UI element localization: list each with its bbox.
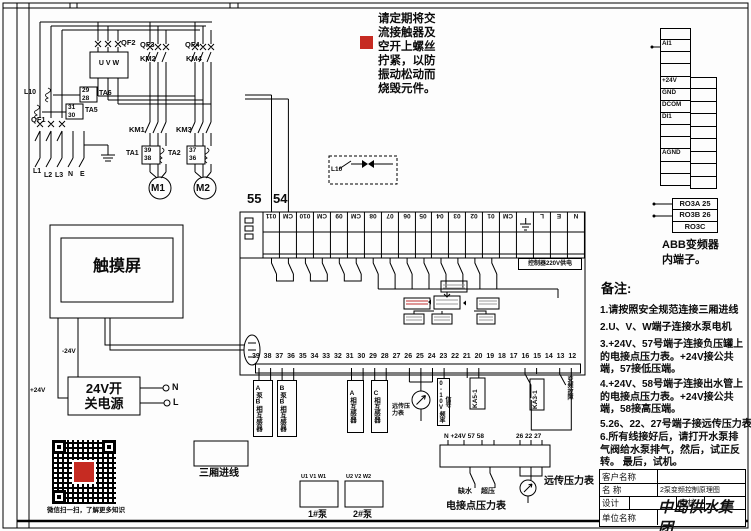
psu-n: N	[172, 382, 179, 392]
red-seal-icon	[360, 36, 373, 49]
label-ta2: TA2	[168, 150, 181, 158]
titleblock-name-label: 名 称	[600, 484, 658, 497]
pump1-terminals-label: U1 V1 W1	[301, 474, 326, 480]
label-km4: KM4	[186, 55, 202, 64]
freq-signal-label: 0-10V频率信号	[437, 378, 450, 426]
label-km1: KM1	[129, 126, 145, 135]
label-float-l10: L10	[331, 166, 342, 173]
sensor-wiring	[259, 368, 571, 430]
schematic-page: 请定期将交 流接触器及 空开上螺丝 拧紧，以防 振动松动而 烧毁元件。 QF1 …	[0, 0, 751, 531]
qr-caption: 微信扫一扫，了解更多知识	[38, 507, 134, 514]
contact-gauge-label: 电接点压力表	[446, 501, 506, 513]
pump1-label: 1#泵	[308, 509, 327, 519]
abb-right-terminals[interactable]	[690, 77, 717, 189]
label-54: 54	[273, 192, 287, 207]
low-water-label: 缺水	[458, 488, 472, 496]
relay-ka3-label: KA3-1	[532, 381, 539, 409]
label-qf2: QF2	[121, 39, 136, 48]
label-55: 55	[247, 192, 261, 207]
label-km2: KM2	[140, 55, 156, 64]
plc-top-terminal-row[interactable]: 011CM010CM09CM0807060504030201CMLEN	[263, 212, 585, 258]
remote-gauge-small-label: 远传压 力表	[392, 404, 410, 418]
label-l1: L1	[33, 168, 41, 176]
titleblock-company-label: 单位名称	[600, 510, 658, 525]
qr-code[interactable]	[52, 440, 116, 504]
notes-title: 备注:	[601, 282, 631, 297]
label-l2: L2	[44, 172, 52, 180]
remote-gauge-label: 远传压力表	[544, 476, 594, 488]
qr-finder-icon	[52, 440, 66, 454]
note-6: 6.所有线接好后，请打开水泵排气阀给水泵排气，然后，试正反转。 最后，试机。	[600, 432, 748, 470]
note-4: 4.+24V、58号端子连接出水管上的电接点压力表。+24V接公共端，58接高压…	[600, 379, 748, 417]
plc-bottom-terminal-row[interactable]: 3938373635343332313029282726252423222120…	[250, 353, 578, 360]
qr-logo	[72, 460, 96, 484]
mini-flow-diagram	[404, 281, 499, 324]
label-ta5-terms: 3130	[68, 104, 75, 119]
label-km3: KM3	[176, 126, 192, 135]
maintenance-note: 请定期将交 流接触器及 空开上螺丝 拧紧，以防 振动松动而 烧毁元件。	[378, 12, 444, 96]
titleblock-company-name: 中岛供水集团	[658, 508, 745, 526]
relay-ka5-label: KA5-1	[472, 380, 479, 408]
abb-caption: ABB变频器 内端子。	[662, 238, 719, 268]
over-pressure-label: 超压	[481, 488, 495, 496]
titleblock-customer-value	[658, 470, 745, 484]
touchscreen-label[interactable]: 触摸屏	[61, 258, 173, 276]
ct-phase-a-label: A相互感器	[347, 380, 364, 433]
qr-finder-icon	[52, 490, 66, 504]
qr-finder-icon	[102, 440, 116, 454]
psu-l: L	[173, 397, 179, 407]
plc-input-contacts	[272, 258, 559, 298]
label-plus24v: +24V	[30, 387, 45, 394]
label-minus24v: -24V	[62, 348, 76, 355]
label-qf1: QF1	[31, 116, 46, 125]
note-5: 5.26、22、27号端子接远传压力表	[600, 419, 751, 431]
label-e-in: E	[80, 171, 85, 179]
label-ta2-terms: 3736	[189, 147, 196, 163]
three-phase-inline-label: 三厢进线	[199, 468, 239, 480]
label-l10: L10	[24, 89, 36, 97]
title-block: 客户名称 名 称 2泵变频控制原理图 设计 审核 单位名称 中岛供水集团	[599, 469, 746, 527]
label-qf4: QF4	[185, 41, 200, 50]
psu-label: 24V开 关电源	[72, 381, 136, 411]
strip-labels-left: N +24V 57 58	[444, 433, 484, 440]
label-ta5: TA5	[85, 107, 98, 115]
label-qf3: QF3	[140, 41, 155, 50]
abb-left-terminals[interactable]: AI1+24VGNDDCOMDI1AGND	[660, 28, 691, 186]
note-2: 2.U、V、W端子连接水泵电机	[600, 322, 750, 335]
titleblock-design-label: 设计	[600, 497, 630, 510]
pump2-label: 2#泵	[353, 509, 372, 519]
label-ta6-terms: 2928	[82, 87, 89, 102]
ct-pump-b-label: B泵B相互感器	[277, 380, 297, 437]
note-3: 3.+24V、57号端子连接负压罐上的电接点压力表。+24V接公共端，57接低压…	[600, 339, 748, 377]
label-m2: M2	[196, 183, 210, 195]
label-l3: L3	[55, 172, 63, 180]
label-n-in: N	[68, 171, 73, 179]
label-ta6: TA6	[99, 90, 112, 98]
vfd-fault-label: 变频故障	[566, 376, 572, 416]
label-ta1-terms: 3938	[144, 147, 151, 163]
plc-supply-label: 控制器220V供电	[518, 258, 582, 270]
ct-phase-c-label: C相互感器	[371, 380, 388, 433]
terminal-strip-photos	[194, 440, 550, 507]
note-1: 1.请按照安全规范连接三厢进线	[600, 305, 750, 318]
label-m1: M1	[151, 183, 165, 195]
abb-relay-terminals[interactable]: RO3A 25RO3B 26RO3C	[672, 198, 718, 233]
ct-pump-a-label: A泵B相互感器	[253, 380, 273, 437]
strip-labels-right: 26 22 27	[516, 433, 541, 440]
label-ta1: TA1	[126, 150, 139, 158]
pump2-terminals-label: U2 V2 W2	[346, 474, 371, 480]
label-uvw: U V W	[93, 60, 125, 68]
titleblock-customer-label: 客户名称	[600, 470, 658, 484]
